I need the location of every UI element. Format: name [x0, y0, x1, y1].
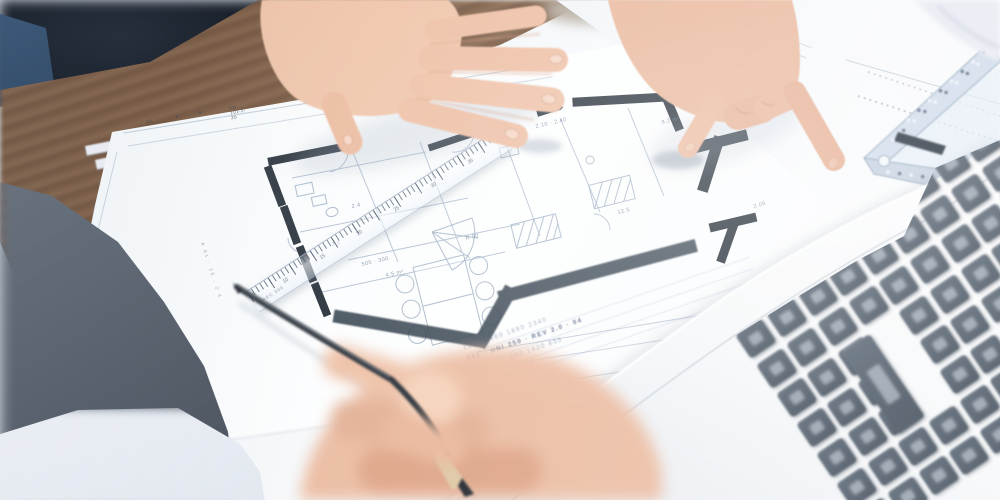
pencil-highlight — [236, 285, 390, 377]
thumb-over-pencil — [398, 430, 448, 448]
photo-architects-desk: 6/15MKH 101·2-20 ⊕ A—— A 61 · 15 · 2 4 — [0, 0, 1000, 500]
hand-holding-pencil — [0, 0, 1000, 500]
hand-blob — [300, 349, 662, 500]
